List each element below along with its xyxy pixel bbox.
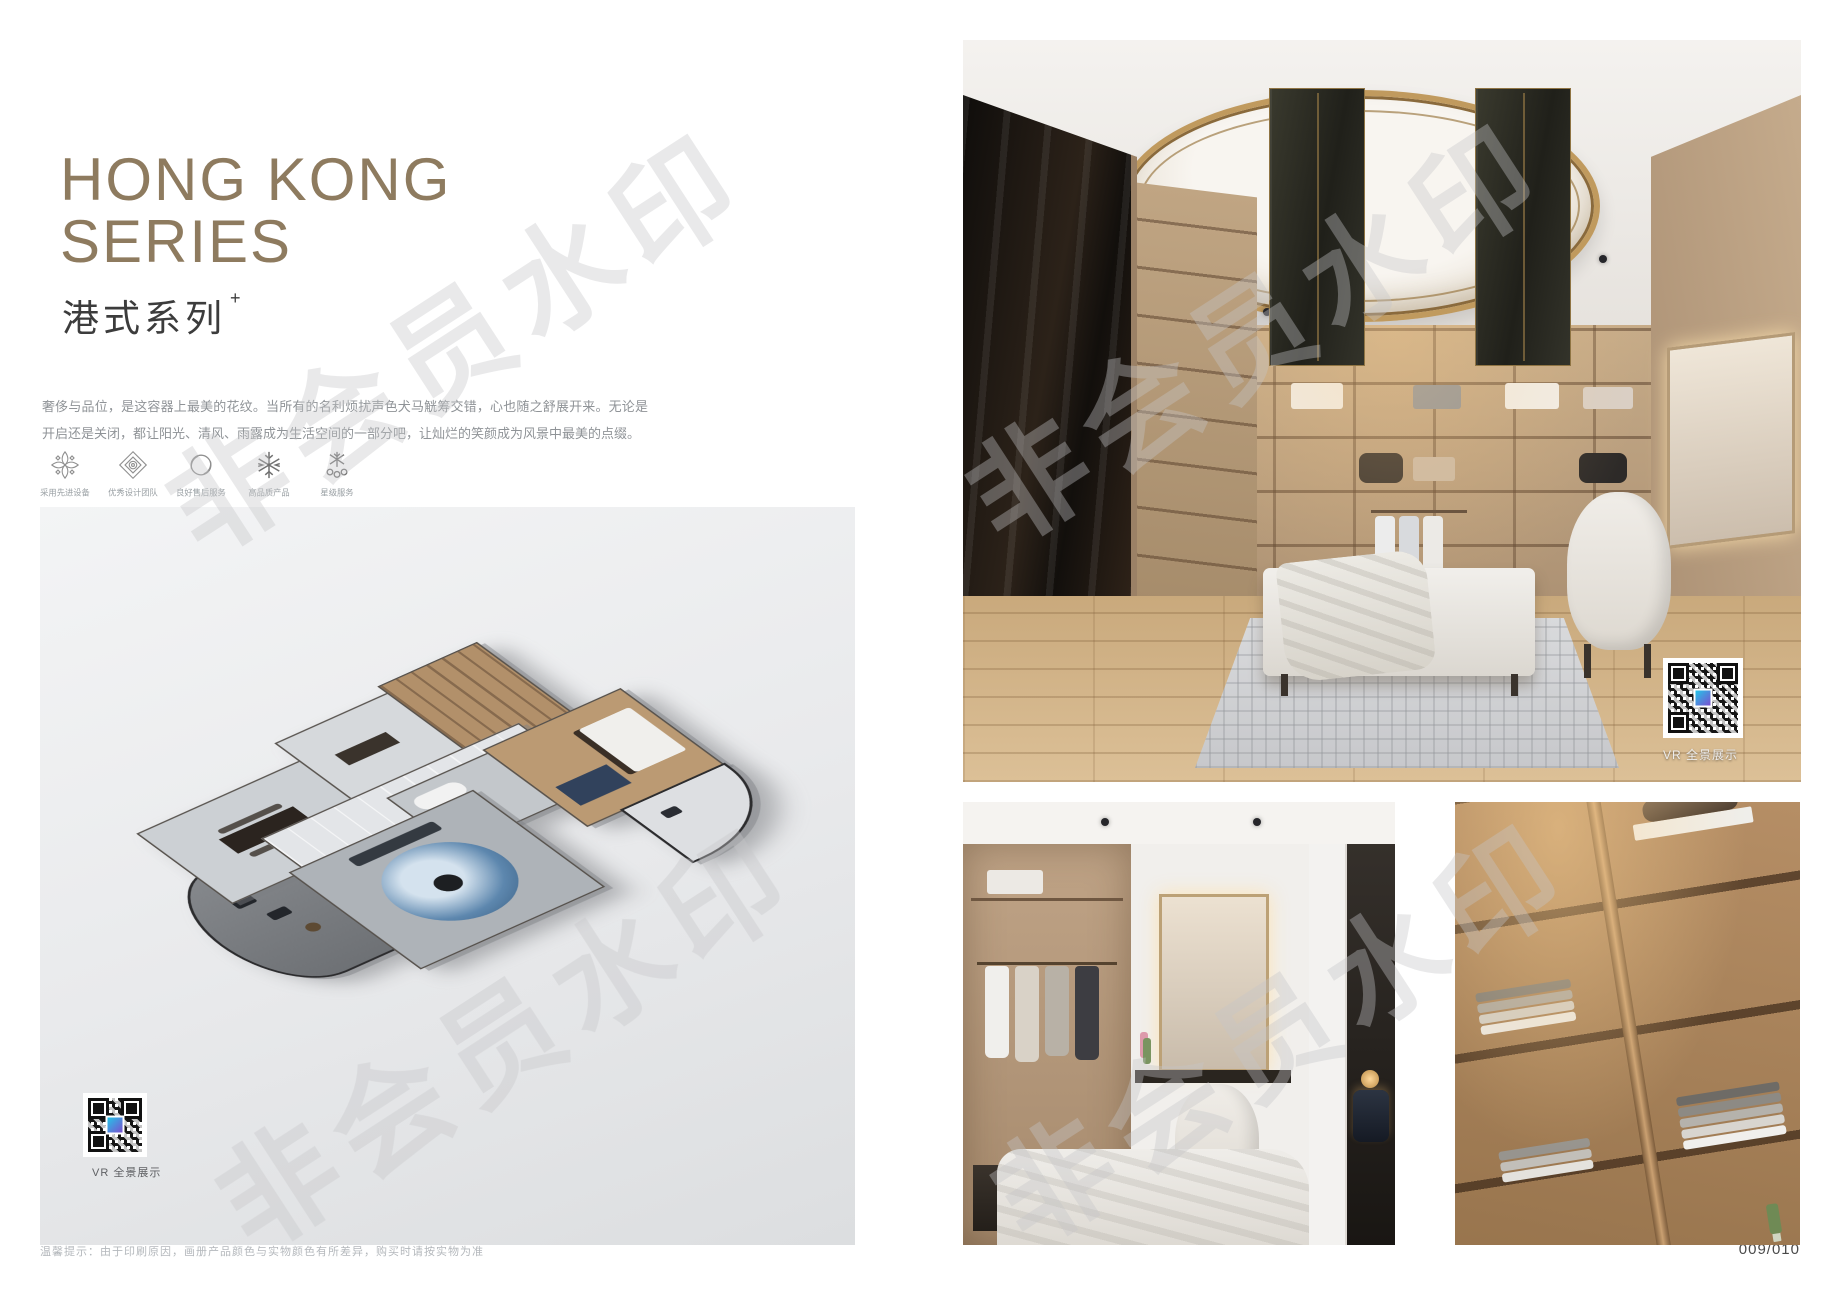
- vr-panorama-label: VR 全景展示: [92, 1164, 161, 1180]
- bench-leg: [1281, 674, 1288, 696]
- handbag: [1579, 453, 1627, 483]
- dark-hallway: [1347, 844, 1395, 1245]
- vanity-chair: [1567, 492, 1671, 650]
- kitchen-island: [335, 732, 400, 765]
- qr-logo: [106, 1116, 125, 1135]
- series-title-line1: HONG KONG: [60, 150, 451, 210]
- walk-in-closet-photo: VR 全景展示: [963, 40, 1801, 782]
- bed: [578, 707, 687, 772]
- handbag: [1359, 453, 1403, 483]
- vanity-desk: [1135, 1070, 1291, 1083]
- floorplan-render: VR 全景展示: [40, 507, 855, 1245]
- storage-box: [1413, 385, 1461, 409]
- star-service-icon: [322, 450, 352, 480]
- clover-ornament-icon: [50, 450, 80, 480]
- series-subtitle: 港式系列+: [62, 288, 241, 342]
- chair-leg: [1644, 644, 1651, 678]
- series-description: 奢侈与品位，是这容器上最美的花纹。当所有的名利烦扰声色犬马觥筹交错，心也随之舒展…: [42, 393, 648, 447]
- series-subtitle-text: 港式系列: [62, 298, 226, 339]
- qr-finder: [1668, 663, 1689, 684]
- left-shelf-column: [1137, 183, 1257, 668]
- print-disclaimer-note: 温馨提示：由于印刷原因，画册产品颜色与实物颜色有所差异，购买时请按实物为准: [40, 1243, 484, 1259]
- bed-with-blanket: [997, 1149, 1309, 1245]
- qr-logo: [1694, 689, 1713, 708]
- shelf-closeup-photo: [1455, 802, 1800, 1245]
- upholstered-bench: [1263, 568, 1535, 676]
- bench-leg: [1511, 674, 1518, 696]
- folded-clothes: [1583, 387, 1633, 409]
- hanging-garment: [1075, 966, 1099, 1060]
- vanity-mirror: [1667, 332, 1795, 549]
- feature-label: 采用先进设备: [38, 487, 91, 499]
- spotlight: [1599, 255, 1607, 263]
- ceiling: [963, 802, 1395, 844]
- diamond-ornament-icon: [118, 450, 148, 480]
- spotlight: [1101, 818, 1109, 826]
- pink-flowers: [1143, 1038, 1151, 1064]
- vanity-corner-photo: [963, 802, 1395, 1245]
- hanging-rod: [1371, 510, 1467, 513]
- hanging-rod: [977, 962, 1117, 965]
- chair-leg: [1584, 644, 1591, 678]
- qr-finder: [1668, 712, 1689, 733]
- white-panel-wall: [1309, 844, 1347, 1245]
- hanging-garment: [1045, 966, 1069, 1056]
- feature-list: 采用先进设备 优秀设计团队 良好售后服务: [36, 450, 366, 499]
- dark-wardrobe-cabinet: [1475, 88, 1571, 366]
- isometric-apartment-plan: [61, 621, 790, 1024]
- feature-label: 高品质产品: [242, 487, 295, 499]
- feature-star-service: 星级服务: [308, 450, 366, 499]
- spotlight: [1253, 818, 1261, 826]
- shelf: [971, 898, 1123, 901]
- vr-qr-code: [83, 1093, 147, 1157]
- feature-label: 优秀设计团队: [106, 487, 159, 499]
- dark-wardrobe-cabinet: [1269, 88, 1365, 366]
- qr-finder: [1717, 663, 1738, 684]
- storage-box: [1505, 383, 1559, 409]
- storage-box: [1291, 383, 1343, 409]
- feature-label: 良好售后服务: [174, 487, 227, 499]
- circle-brush-icon: [186, 450, 216, 480]
- feature-label: 星级服务: [310, 487, 363, 499]
- draped-blanket: [1275, 548, 1437, 683]
- feature-equipment: 采用先进设备: [36, 450, 94, 499]
- hanging-garment: [1015, 966, 1039, 1062]
- warm-light-glow: [1455, 802, 1800, 1245]
- feature-quality: 高品质产品: [240, 450, 298, 499]
- bedroom-rug: [555, 764, 631, 805]
- feature-design-team: 优秀设计团队: [104, 450, 162, 499]
- lounge-chair: [266, 906, 294, 921]
- snowflake-icon: [254, 450, 284, 480]
- vr-panorama-label: VR 全景展示: [1663, 746, 1738, 763]
- catalog-page: HONG KONG SERIES 港式系列+ 奢侈与品位，是这容器上最美的花纹。…: [0, 0, 1836, 1307]
- side-table: [302, 921, 324, 934]
- vr-qr-code: [1663, 658, 1743, 738]
- series-title-line2: SERIES: [60, 212, 292, 272]
- table-lamp: [1361, 1070, 1379, 1088]
- balcony-chair: [660, 806, 684, 819]
- hat-box: [1413, 457, 1455, 481]
- feature-after-sales: 良好售后服务: [172, 450, 230, 499]
- subtitle-plus-mark: +: [230, 288, 245, 308]
- drum-side-table: [1353, 1090, 1389, 1142]
- storage-box: [987, 870, 1043, 894]
- lighted-mirror: [1159, 894, 1269, 1072]
- hanging-garment: [985, 966, 1009, 1058]
